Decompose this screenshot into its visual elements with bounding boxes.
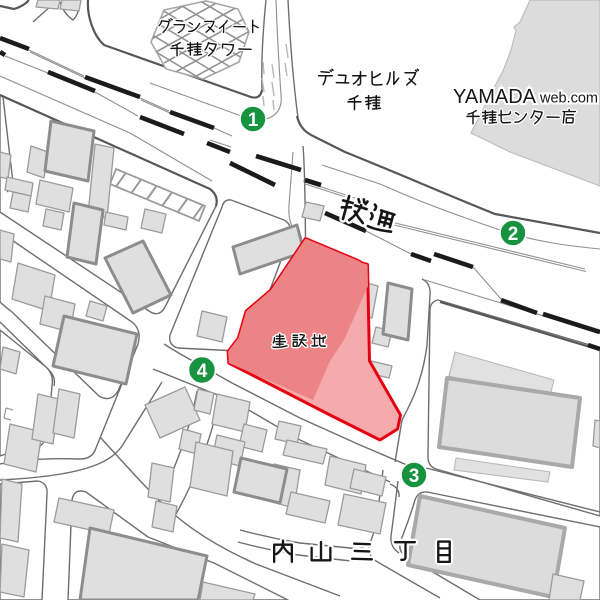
svg-text:1: 1 [248, 110, 259, 131]
svg-text:3: 3 [409, 466, 420, 487]
svg-text:4: 4 [197, 361, 208, 382]
svg-text:2: 2 [508, 224, 519, 245]
